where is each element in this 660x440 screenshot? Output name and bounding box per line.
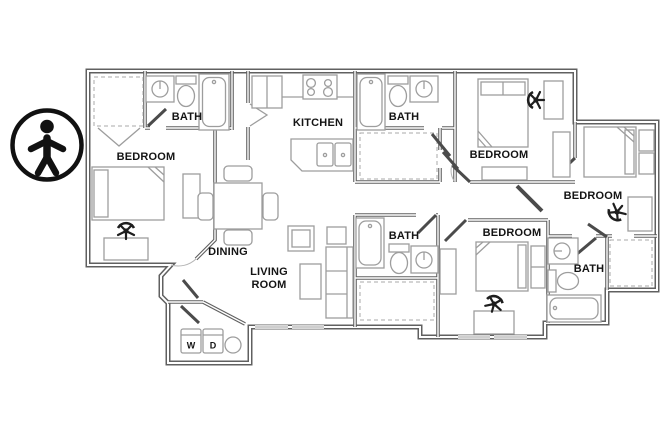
door-bifold-closet-1 — [98, 128, 140, 146]
label-kitchen: KITCHEN — [293, 117, 343, 129]
room-bedroom-4 — [440, 242, 545, 334]
bed-pillow — [625, 130, 634, 174]
toilet-icon — [390, 86, 407, 107]
door-bedroom-4 — [445, 220, 466, 241]
accessibility-icon — [13, 111, 82, 180]
bed-pillow — [94, 170, 108, 217]
walkin-closet-bath-4 — [610, 240, 652, 286]
dryer-label: D — [210, 341, 217, 351]
door-bath-1 — [148, 109, 166, 126]
toilet-tank — [548, 270, 556, 292]
bathtub — [199, 74, 229, 130]
label-bath-3: BATH — [389, 230, 420, 242]
bathtub — [357, 74, 385, 130]
door-laundry — [181, 306, 199, 323]
dining-chair — [263, 193, 278, 220]
hall-angled-wall — [517, 186, 542, 211]
bed-pillow — [518, 245, 526, 288]
walkin-closet-bath-2 — [360, 133, 437, 179]
door-bath-4 — [577, 238, 596, 254]
label-bedroom-2: BEDROOM — [470, 149, 529, 161]
room-bath-4 — [547, 238, 601, 322]
floor-plan-page: W D BEDROOM BATH KITCHEN BATH BEDROOM BE… — [0, 0, 660, 440]
toilet-icon — [558, 273, 579, 290]
room-laundry: W D — [181, 329, 241, 353]
label-bedroom-1: BEDROOM — [117, 151, 176, 163]
desk — [474, 311, 514, 334]
coffee-table — [300, 264, 321, 299]
toilet-icon — [178, 86, 195, 107]
sink-basin — [335, 143, 351, 166]
dining-table — [214, 183, 262, 229]
desk-chair-icon — [118, 223, 134, 239]
sink-basin — [317, 143, 333, 166]
label-dining: DINING — [208, 246, 248, 258]
label-bath-4: BATH — [574, 263, 605, 275]
door-bath-3 — [418, 215, 436, 233]
toilet-tank — [389, 244, 409, 252]
room-bedroom-2 — [478, 79, 570, 180]
nightstand — [639, 153, 654, 174]
sofa — [326, 247, 353, 318]
label-bath-2: BATH — [389, 111, 420, 123]
bathtub — [547, 295, 601, 322]
desk — [544, 81, 563, 119]
room-bedroom-1 — [92, 167, 200, 260]
label-bedroom-4: BEDROOM — [483, 227, 542, 239]
walkin-closet-bath-3 — [360, 282, 434, 320]
floor-plan-image: W D BEDROOM BATH KITCHEN BATH BEDROOM BE… — [0, 0, 660, 440]
toilet-tank — [388, 76, 408, 84]
room-dining — [198, 166, 278, 245]
label-living-line1: LIVING — [250, 266, 288, 278]
nightstand — [639, 130, 654, 151]
label-bath-1: BATH — [172, 111, 203, 123]
closet-bedroom-1 — [94, 77, 143, 126]
dining-chair — [224, 230, 252, 245]
room-bedroom-3 — [584, 127, 654, 231]
desk-chair-icon — [528, 92, 544, 108]
desk — [104, 238, 148, 260]
wardrobe — [553, 132, 570, 177]
room-living — [288, 226, 353, 318]
desk — [628, 197, 652, 231]
label-living-line2: ROOM — [251, 279, 286, 291]
desk-chair-icon — [606, 201, 628, 223]
accessibility-icon-head — [40, 120, 54, 134]
washer-label: W — [187, 341, 196, 351]
dining-chair — [198, 193, 213, 220]
door-entry — [183, 280, 198, 298]
toilet-icon — [391, 253, 408, 274]
wardrobe — [440, 249, 456, 294]
toilet-tank — [176, 76, 196, 84]
side-table — [327, 227, 346, 244]
dresser — [482, 167, 527, 180]
water-heater — [225, 337, 241, 353]
bathtub — [356, 218, 384, 268]
dining-chair — [224, 166, 252, 181]
label-bedroom-3: BEDROOM — [564, 190, 623, 202]
